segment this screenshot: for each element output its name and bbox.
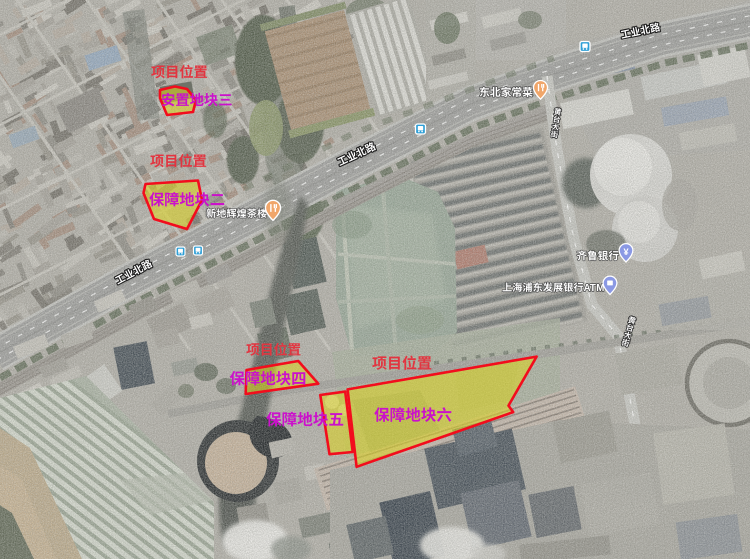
- svg-text:T: T: [590, 283, 596, 294]
